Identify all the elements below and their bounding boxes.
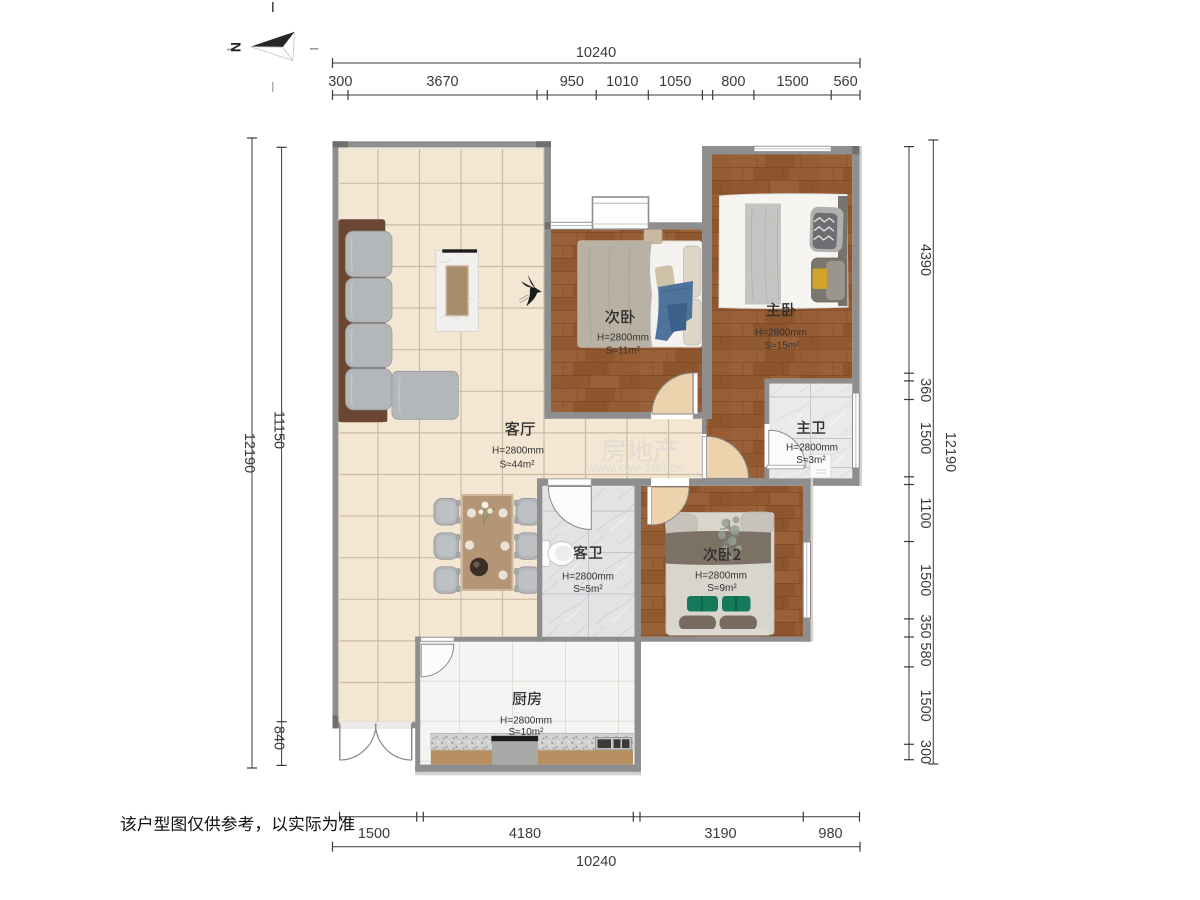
svg-text:1500: 1500 (917, 422, 933, 454)
svg-text:1500: 1500 (917, 564, 933, 596)
svg-text:1010: 1010 (606, 74, 638, 90)
svg-text:3670: 3670 (426, 74, 458, 90)
svg-text:800: 800 (721, 74, 745, 90)
svg-text:H=2800mm: H=2800mm (755, 328, 807, 339)
svg-text:11150: 11150 (271, 411, 287, 449)
svg-text:H=2800mm: H=2800mm (597, 333, 649, 344)
svg-text:1100: 1100 (917, 497, 933, 528)
svg-text:950: 950 (560, 74, 584, 90)
svg-text:1050: 1050 (659, 74, 691, 90)
svg-text:N: N (228, 42, 244, 52)
svg-text:1500: 1500 (917, 689, 933, 721)
svg-text:980: 980 (818, 826, 842, 842)
svg-text:H=2800mm: H=2800mm (500, 716, 552, 727)
svg-text:1500: 1500 (358, 826, 390, 842)
svg-text:360: 360 (917, 378, 933, 402)
svg-text:4390: 4390 (917, 244, 933, 276)
svg-text:S≈9m²: S≈9m² (707, 583, 737, 594)
svg-text:300: 300 (917, 740, 933, 764)
svg-text:12190: 12190 (241, 433, 257, 473)
svg-text:S≈3m²: S≈3m² (796, 455, 826, 466)
svg-text:10240: 10240 (576, 854, 616, 870)
svg-text:H=2800mm: H=2800mm (492, 446, 544, 457)
svg-text:300: 300 (328, 74, 352, 90)
svg-text:3190: 3190 (704, 826, 736, 842)
svg-text:H=2800mm: H=2800mm (786, 443, 838, 454)
svg-text:840: 840 (271, 726, 287, 750)
svg-text:www.xwy-100.cn: www.xwy-100.cn (586, 460, 684, 475)
svg-text:S≈15m²: S≈15m² (765, 341, 801, 352)
svg-text:1500: 1500 (776, 74, 808, 90)
svg-text:12190: 12190 (942, 432, 958, 472)
svg-text:H=2800mm: H=2800mm (695, 571, 747, 582)
svg-text:S≈5m²: S≈5m² (573, 584, 603, 595)
svg-text:4180: 4180 (509, 826, 541, 842)
svg-text:S≈11m²: S≈11m² (606, 346, 641, 357)
svg-text:580: 580 (917, 642, 933, 666)
svg-text:10240: 10240 (576, 45, 616, 61)
svg-text:350: 350 (917, 614, 933, 638)
svg-text:S≈10m²: S≈10m² (509, 727, 545, 738)
svg-text:560: 560 (833, 74, 857, 90)
svg-text:S≈44m²: S≈44m² (500, 460, 536, 471)
svg-text:H=2800mm: H=2800mm (562, 572, 614, 583)
